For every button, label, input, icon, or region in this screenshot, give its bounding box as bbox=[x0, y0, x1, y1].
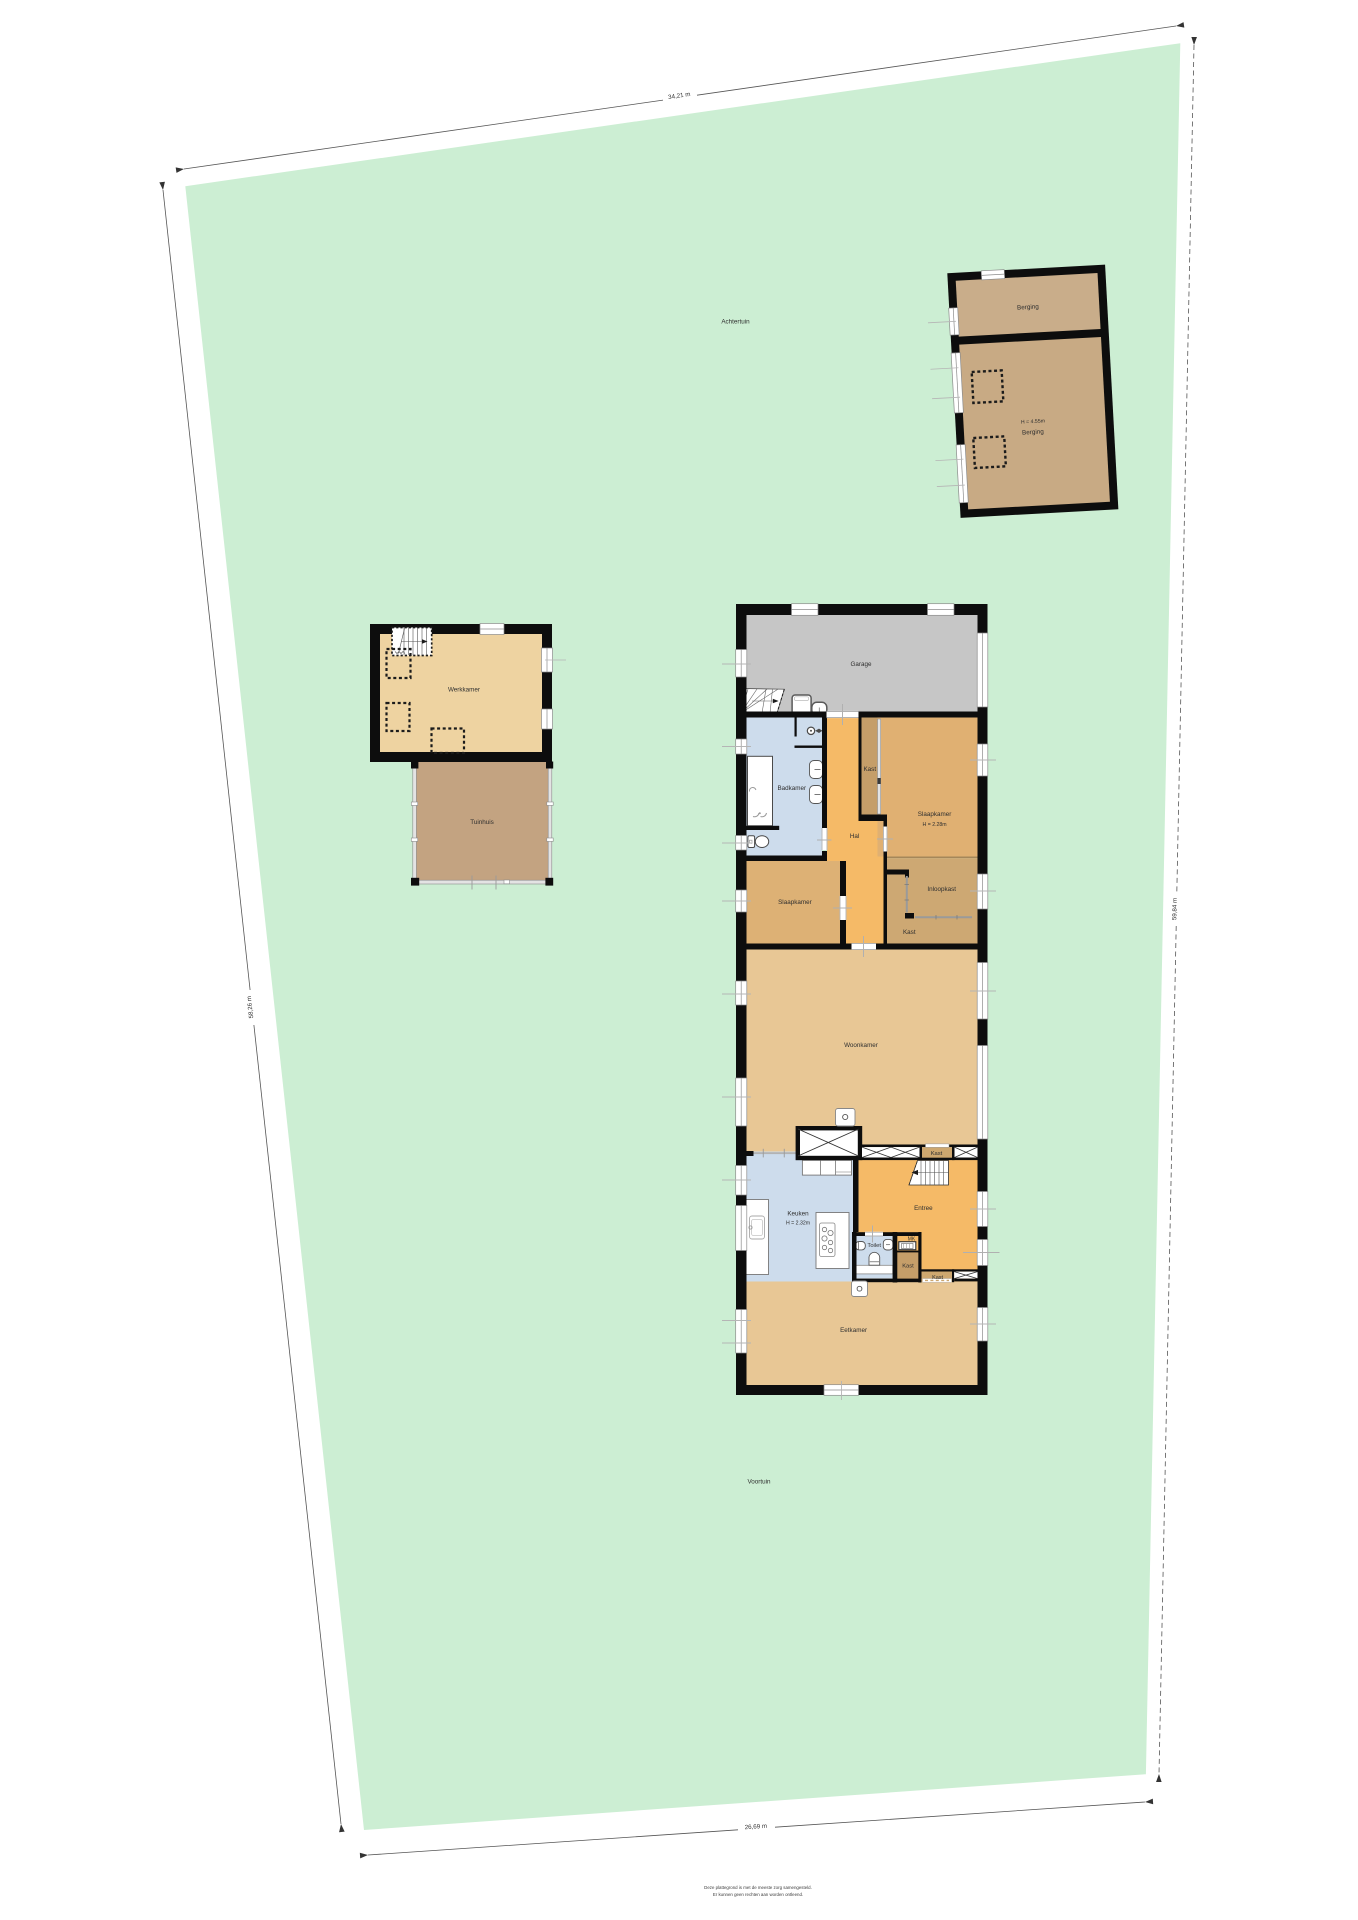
svg-text:Garage: Garage bbox=[850, 661, 872, 668]
svg-text:Woonkamer: Woonkamer bbox=[844, 1042, 878, 1049]
svg-text:Kast: Kast bbox=[903, 929, 916, 936]
svg-text:Slaapkamer: Slaapkamer bbox=[918, 811, 952, 818]
svg-text:Eetkamer: Eetkamer bbox=[840, 1327, 867, 1334]
svg-text:Kast: Kast bbox=[931, 1151, 943, 1157]
svg-text:Werkkamer: Werkkamer bbox=[448, 687, 480, 694]
svg-text:MK: MK bbox=[908, 1236, 916, 1242]
svg-text:Berging: Berging bbox=[1017, 303, 1040, 311]
svg-text:Keuken: Keuken bbox=[787, 1211, 809, 1218]
svg-text:Berging: Berging bbox=[1022, 428, 1045, 436]
svg-text:Er kunnen geen rechten aan wor: Er kunnen geen rechten aan worden ontlee… bbox=[713, 1892, 803, 1897]
svg-text:H = 2.32m: H = 2.32m bbox=[786, 1221, 810, 1227]
svg-text:Voortuin: Voortuin bbox=[747, 1479, 771, 1486]
svg-text:Badkamer: Badkamer bbox=[777, 785, 806, 792]
svg-text:Toilet: Toilet bbox=[867, 1243, 881, 1249]
svg-text:Entree: Entree bbox=[914, 1205, 933, 1212]
svg-text:Slaapkamer: Slaapkamer bbox=[778, 899, 812, 906]
svg-text:Deze plattegrond is met de mee: Deze plattegrond is met de meeste zorg s… bbox=[704, 1885, 812, 1890]
svg-text:Achtertuin: Achtertuin bbox=[721, 319, 750, 326]
svg-text:H = 2.28m: H = 2.28m bbox=[923, 822, 947, 828]
svg-text:Hal: Hal bbox=[850, 833, 859, 840]
svg-text:Inloopkast: Inloopkast bbox=[927, 886, 956, 893]
svg-text:Kast: Kast bbox=[863, 766, 876, 773]
svg-text:Tuinhuis: Tuinhuis bbox=[470, 819, 494, 826]
svg-text:Kast: Kast bbox=[902, 1264, 914, 1270]
svg-text:Kast: Kast bbox=[932, 1275, 943, 1281]
svg-text:59,84 m: 59,84 m bbox=[1171, 898, 1178, 921]
